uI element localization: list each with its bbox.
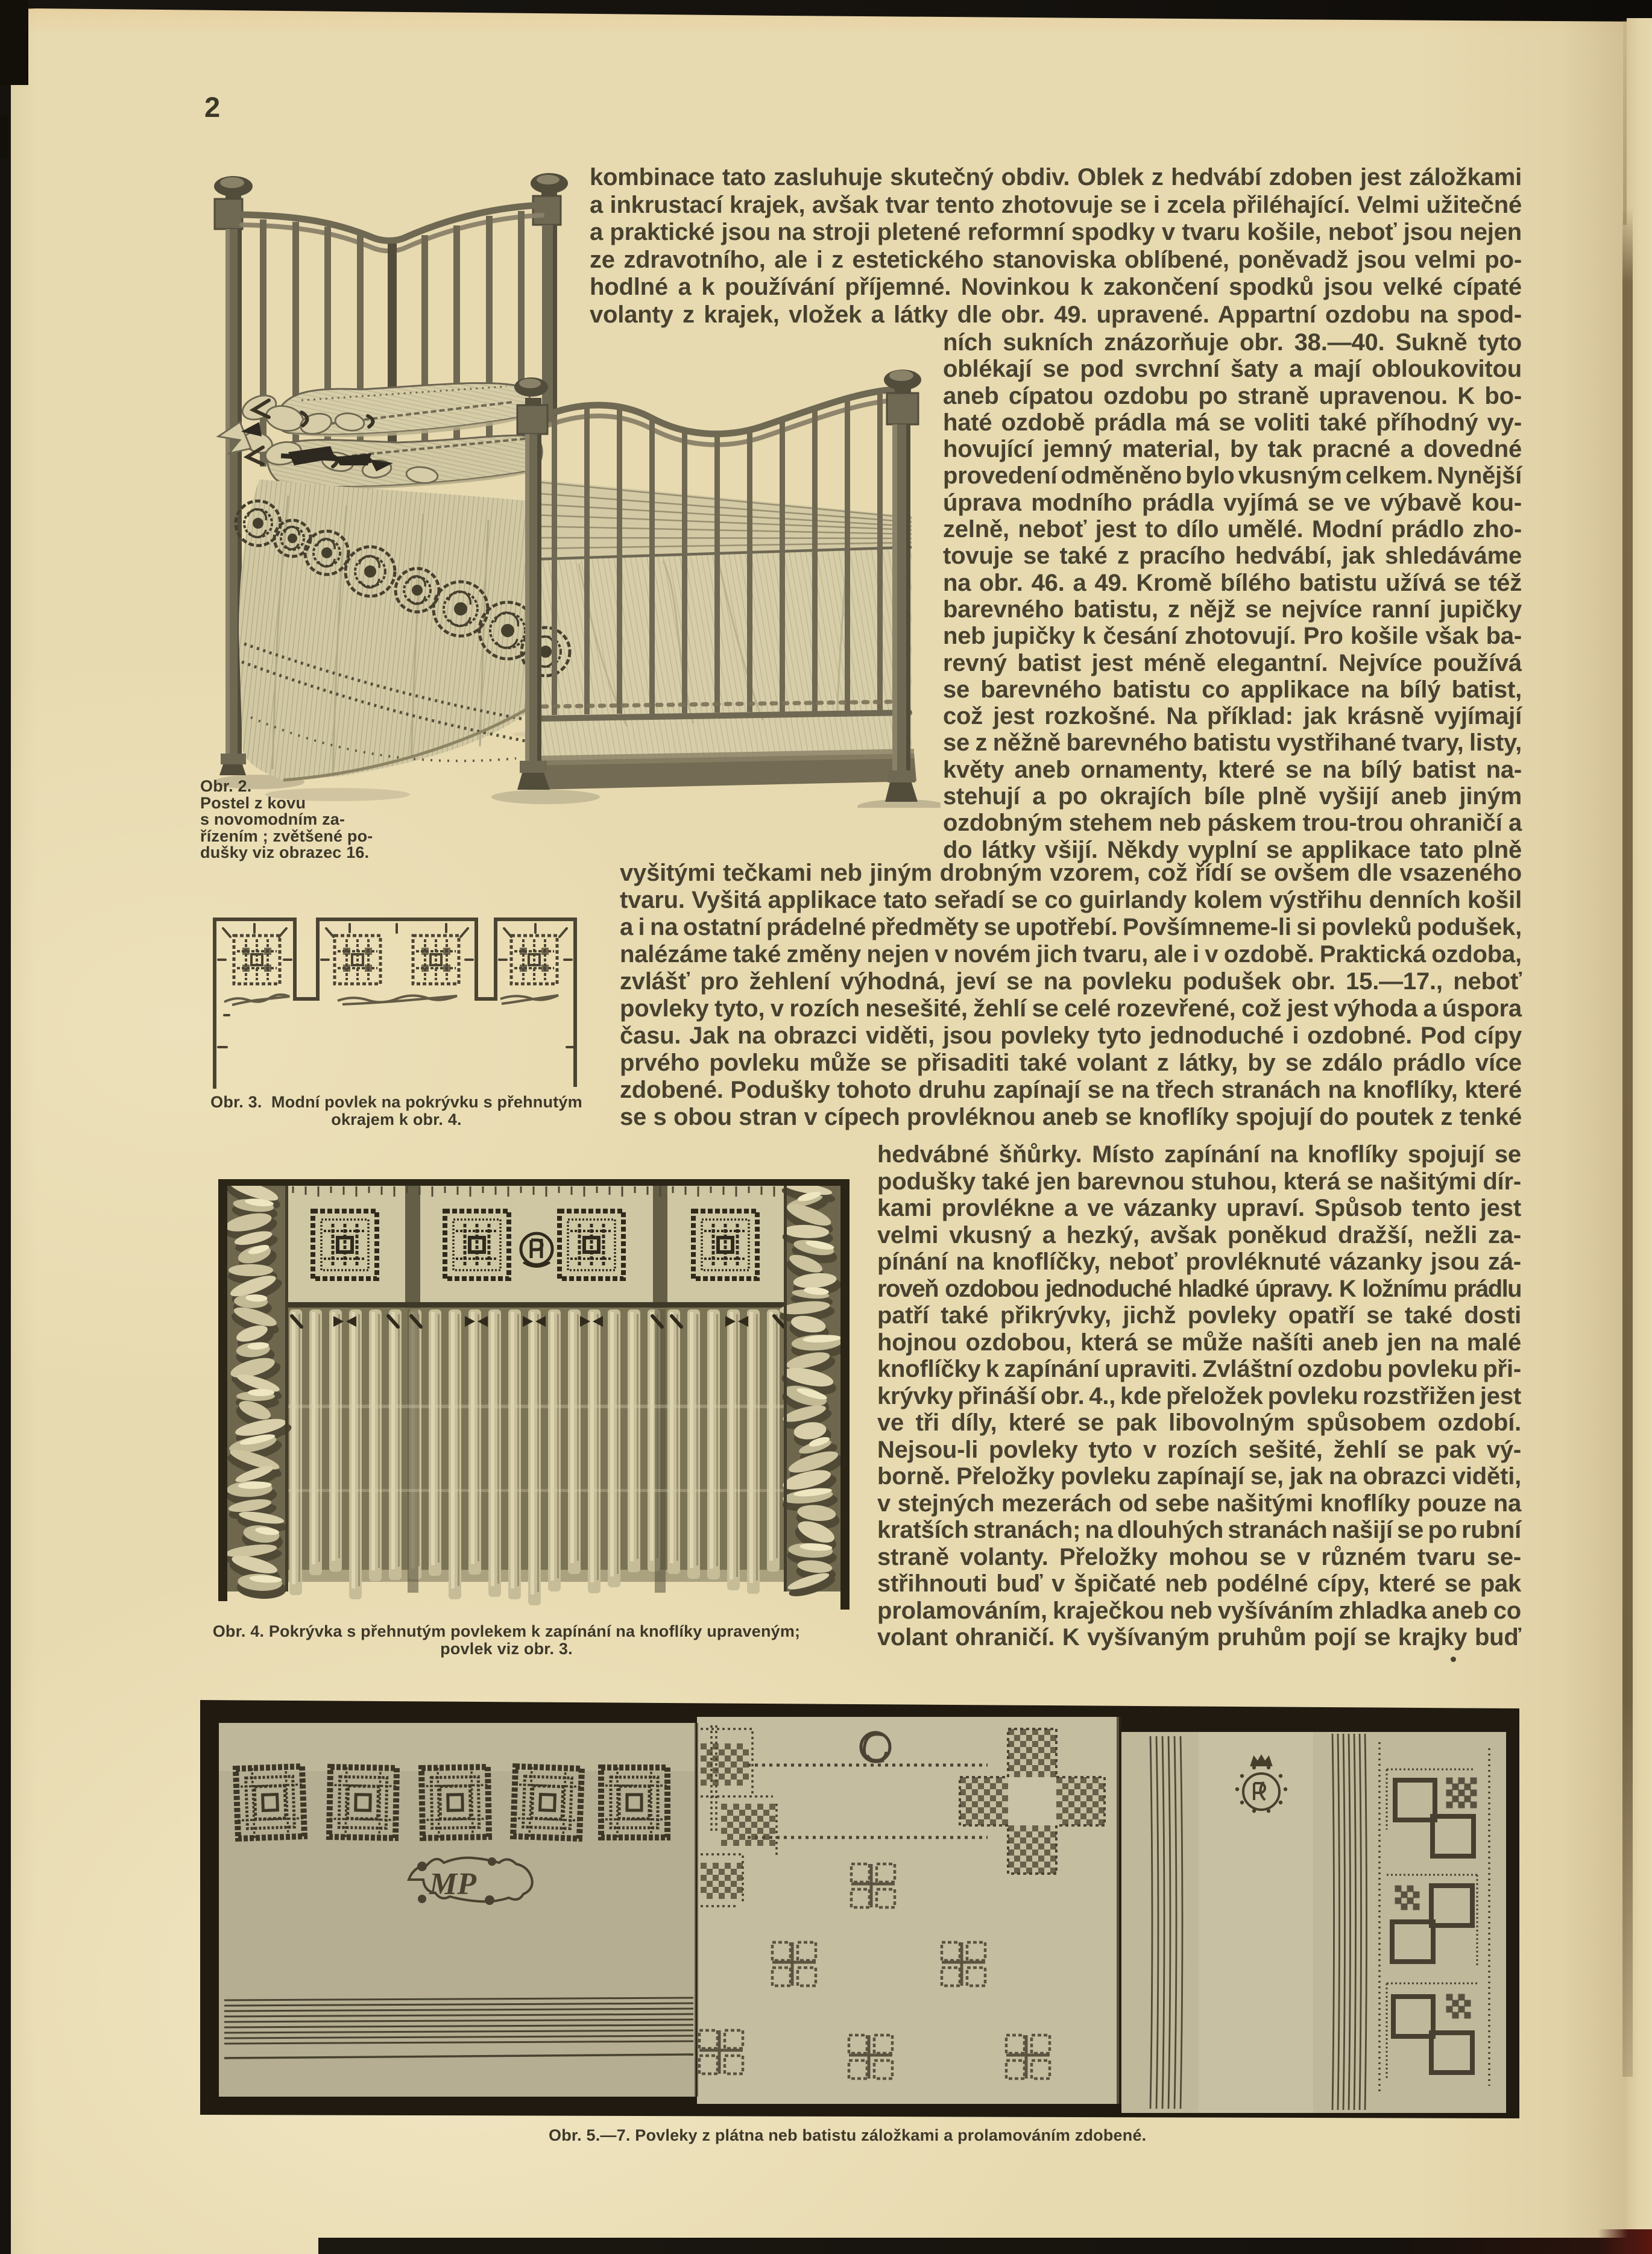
svg-text:MP: MP [429, 1867, 477, 1901]
